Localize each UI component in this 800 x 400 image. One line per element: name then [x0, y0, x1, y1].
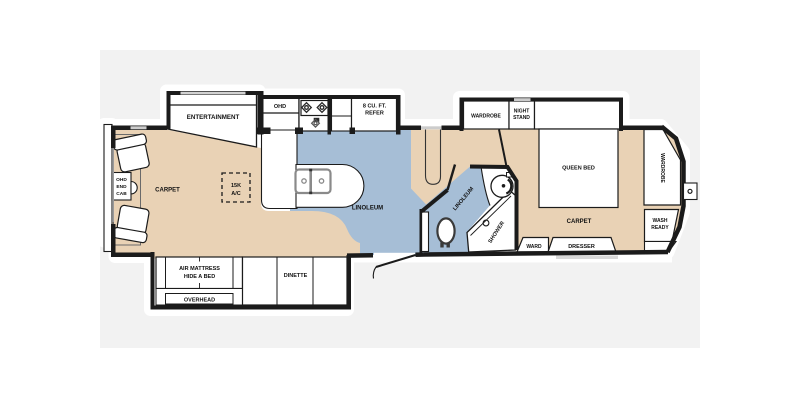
svg-text:ENTERTAINMENT: ENTERTAINMENT [187, 114, 240, 121]
svg-text:CARPET: CARPET [155, 188, 180, 194]
svg-text:DRESSER: DRESSER [568, 244, 595, 250]
svg-text:DINETTE: DINETTE [284, 273, 308, 279]
svg-text:HIDE A BED: HIDE A BED [184, 274, 215, 280]
svg-text:AIR MATTRESS: AIR MATTRESS [179, 266, 220, 272]
svg-text:OHD: OHD [116, 177, 127, 183]
svg-text:CARPET: CARPET [567, 219, 592, 225]
svg-text:NIGHT: NIGHT [514, 109, 530, 115]
svg-text:WASH: WASH [653, 218, 668, 224]
svg-text:WARDROBE: WARDROBE [471, 114, 501, 120]
svg-text:OVERHEAD: OVERHEAD [184, 298, 215, 304]
svg-text:8 CU. FT.: 8 CU. FT. [363, 104, 387, 110]
svg-text:REFER: REFER [365, 111, 384, 117]
svg-text:LINOLEUM: LINOLEUM [352, 206, 383, 212]
svg-text:WARD: WARD [526, 244, 542, 250]
svg-text:A/C: A/C [231, 191, 241, 197]
svg-text:15K: 15K [231, 183, 241, 189]
svg-text:READY: READY [651, 225, 669, 231]
svg-text:END: END [116, 184, 127, 190]
svg-text:OHD: OHD [274, 104, 286, 110]
svg-text:STAND: STAND [513, 115, 530, 121]
svg-text:WARDROBE: WARDROBE [659, 153, 665, 183]
svg-text:CAB: CAB [116, 191, 127, 197]
svg-text:QUEEN BED: QUEEN BED [562, 166, 595, 172]
